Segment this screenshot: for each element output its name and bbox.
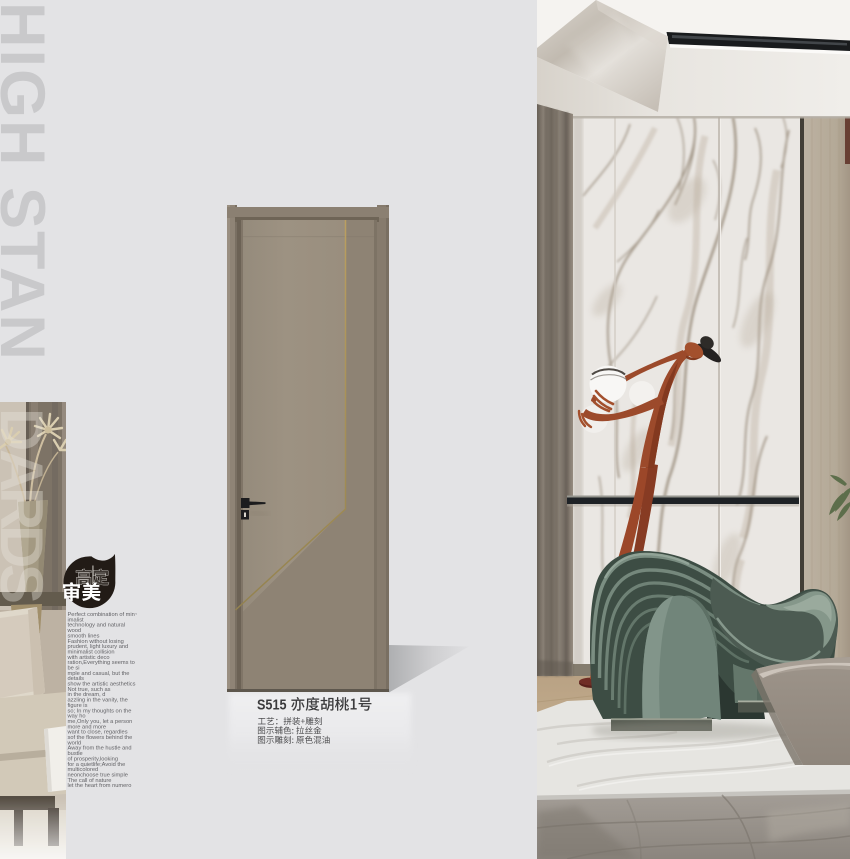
svg-text:DARDS: DARDS (0, 408, 55, 604)
svg-text:HIGH STAN: HIGH STAN (0, 2, 57, 362)
svg-text:Perfect combination of min~: Perfect combination of min~ imalist tech… (67, 612, 137, 789)
svg-text:S515: S515 (257, 697, 287, 714)
